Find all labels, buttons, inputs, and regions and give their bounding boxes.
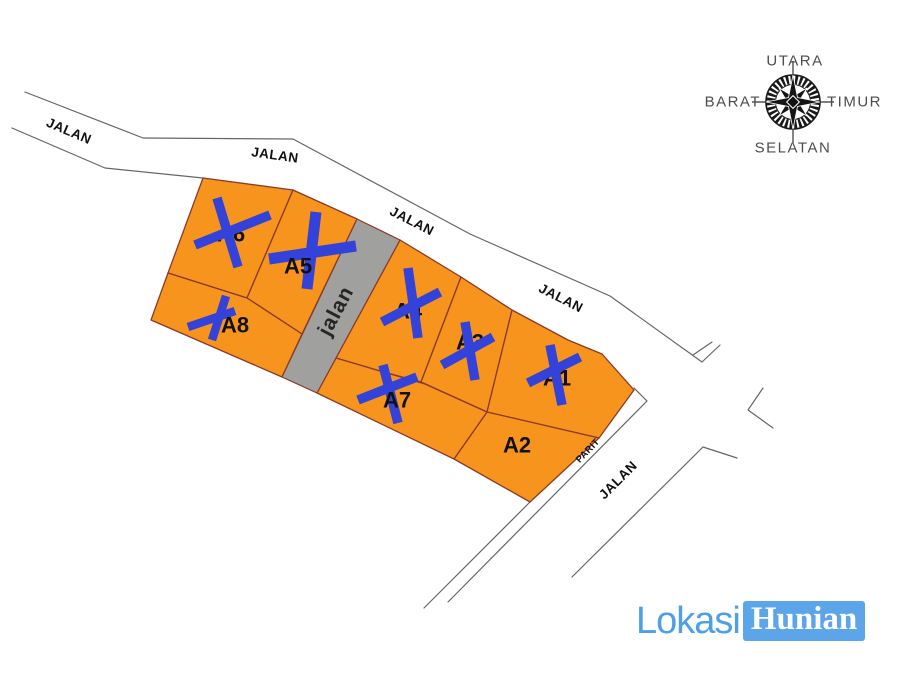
road-label-jalan-5: JALAN — [596, 458, 640, 502]
logo-text-primary: Lokasi — [636, 602, 740, 640]
road-intersection-east-corner — [748, 388, 773, 428]
road-top-lower-line — [12, 128, 203, 178]
plot-label-a2: A2 — [503, 433, 531, 458]
compass-label-east: TIMUR — [827, 94, 882, 111]
logo-text-secondary: Hunian — [743, 601, 865, 641]
compass-label-west: BARAT — [705, 94, 761, 111]
road-label-jalan-4: JALAN — [536, 281, 585, 316]
plot-label-a5: A5 — [284, 254, 312, 279]
plot-label-a7: A7 — [383, 388, 411, 413]
site-plan-map: A6 A4 A3 A1 — [0, 0, 900, 675]
logo: Lokasi Hunian — [636, 597, 865, 645]
road-label-jalan-3: JALAN — [387, 204, 436, 239]
road-label-jalan-2: JALAN — [250, 144, 299, 165]
road-intersection-tick-1 — [693, 342, 712, 355]
ditch-line-inner — [424, 502, 530, 608]
road-south-east-edge — [572, 447, 737, 577]
compass-rose — [752, 61, 834, 143]
road-label-jalan-1: JALAN — [44, 115, 94, 147]
compass-label-north: UTARA — [766, 53, 823, 70]
plot-label-a8: A8 — [221, 313, 249, 338]
compass-label-south: SELATAN — [755, 140, 832, 157]
